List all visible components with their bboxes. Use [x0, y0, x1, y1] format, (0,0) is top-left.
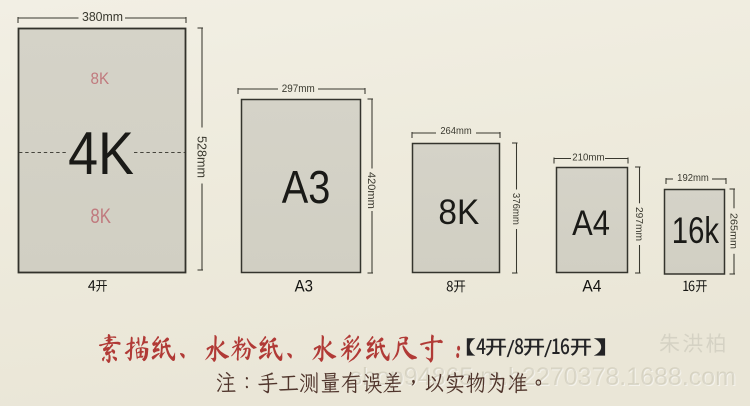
- svg-text:265mm: 265mm: [727, 213, 739, 249]
- svg-text:380mm: 380mm: [82, 10, 123, 24]
- svg-text:A4: A4: [582, 278, 601, 296]
- svg-text:shop94865.m.b2270378.1688.com: shop94865.m.b2270378.1688.com: [350, 363, 736, 391]
- svg-text:A4: A4: [572, 204, 610, 243]
- svg-text:297mm: 297mm: [633, 207, 644, 241]
- svg-text:264mm: 264mm: [440, 126, 471, 137]
- svg-text:528mm: 528mm: [194, 136, 209, 178]
- svg-text:210mm: 210mm: [572, 152, 604, 163]
- svg-text:16k: 16k: [672, 211, 720, 252]
- svg-text:420mm: 420mm: [365, 172, 377, 209]
- svg-text:8K: 8K: [91, 70, 110, 88]
- svg-text:8K: 8K: [438, 193, 479, 232]
- svg-text:8K: 8K: [90, 205, 111, 228]
- svg-text:4K: 4K: [68, 120, 134, 188]
- svg-text:192mm: 192mm: [677, 173, 709, 184]
- svg-text:A3: A3: [295, 278, 314, 296]
- svg-text:297mm: 297mm: [282, 84, 315, 95]
- svg-text:A3: A3: [282, 162, 331, 214]
- svg-text:376mm: 376mm: [510, 193, 521, 225]
